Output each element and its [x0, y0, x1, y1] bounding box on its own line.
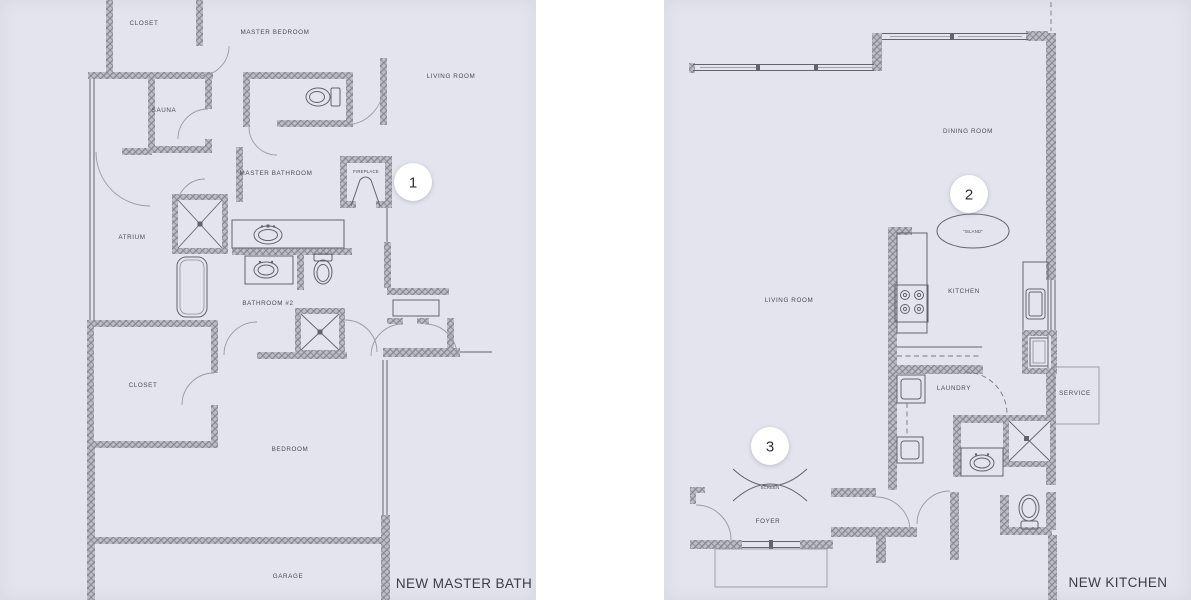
screen-symbol: SCREEN	[733, 469, 807, 501]
toilet-icon-master-wc	[306, 88, 340, 106]
shower-icon-bathroom2	[295, 308, 345, 356]
tall-cabinet-icon	[1022, 330, 1057, 374]
room-label-bathroom-2: BATHROOM #2	[242, 300, 293, 307]
room-label-closet-top: CLOSET	[130, 20, 159, 27]
marker-3[interactable]: 3	[751, 427, 789, 465]
master-bath-plan-panel: CLOSET MASTER BEDROOM LIVING ROOM SAUNA …	[0, 0, 536, 600]
vanity-sink-icon-powder	[961, 448, 1003, 476]
stove-icon	[895, 285, 928, 322]
vanity-sink-icon-master	[232, 220, 344, 248]
island-callout: "ISLAND"	[937, 214, 1009, 248]
marker-2-number: 2	[965, 187, 973, 204]
window-walls-group	[693, 2, 1055, 549]
room-label-fireplace: FIREPLACE	[353, 169, 379, 174]
room-label-kitchen: KITCHEN	[948, 288, 980, 295]
room-label-garage: GARAGE	[273, 573, 304, 580]
marker-2[interactable]: 2	[950, 175, 988, 213]
marker-1[interactable]: 1	[394, 163, 432, 201]
hall-cabinet-icon	[393, 300, 439, 316]
shower-icon-master	[172, 194, 228, 254]
room-label-master-bathroom: MASTER BATHROOM	[240, 170, 313, 177]
room-label-closet-bottom: CLOSET	[129, 382, 158, 389]
room-label-foyer: FOYER	[756, 518, 781, 525]
walls-group	[689, 31, 1057, 600]
entry-porch-outline	[715, 549, 827, 587]
room-label-bedroom: BEDROOM	[272, 446, 309, 453]
dryer-icon	[897, 437, 923, 463]
washer-icon	[897, 375, 925, 403]
toilet-icon-bathroom2	[314, 254, 332, 284]
scanned-floor-plans-page: CLOSET MASTER BEDROOM LIVING ROOM SAUNA …	[0, 0, 1191, 600]
plan-title-kitchen: NEW KITCHEN	[1069, 575, 1168, 590]
vanity-sink-icon-bathroom2	[245, 256, 293, 284]
marker-1-number: 1	[409, 175, 417, 192]
screen-label: SCREEN	[760, 485, 779, 490]
island-label: "ISLAND"	[963, 229, 983, 234]
shower-icon-service-bath	[1003, 415, 1056, 467]
kitchen-sink-icon	[1026, 289, 1045, 319]
marker-3-number: 3	[766, 439, 774, 456]
kitchen-plan-panel: "ISLAND" SCREEN DINING ROOM LIVING ROOM …	[664, 0, 1191, 600]
plan-title-master-bath: NEW MASTER BATH	[396, 576, 532, 591]
bathtub-icon	[177, 257, 207, 317]
room-label-atrium: ATRIUM	[118, 234, 145, 241]
room-label-master-bedroom: MASTER BEDROOM	[241, 29, 310, 36]
room-label-dining-room: DINING ROOM	[943, 128, 993, 135]
room-label-living-room: LIVING ROOM	[427, 73, 476, 80]
fireplace-icon	[340, 156, 392, 208]
toilet-icon-powder	[1019, 495, 1039, 529]
kitchen-floor-plan: "ISLAND" SCREEN DINING ROOM LIVING ROOM …	[664, 0, 1191, 600]
room-label-service: SERVICE	[1059, 390, 1091, 397]
room-label-laundry: LAUNDRY	[937, 385, 971, 392]
master-bath-floor-plan: CLOSET MASTER BEDROOM LIVING ROOM SAUNA …	[0, 0, 536, 600]
room-label-sauna: SAUNA	[152, 107, 177, 114]
room-label-living-room: LIVING ROOM	[765, 297, 814, 304]
